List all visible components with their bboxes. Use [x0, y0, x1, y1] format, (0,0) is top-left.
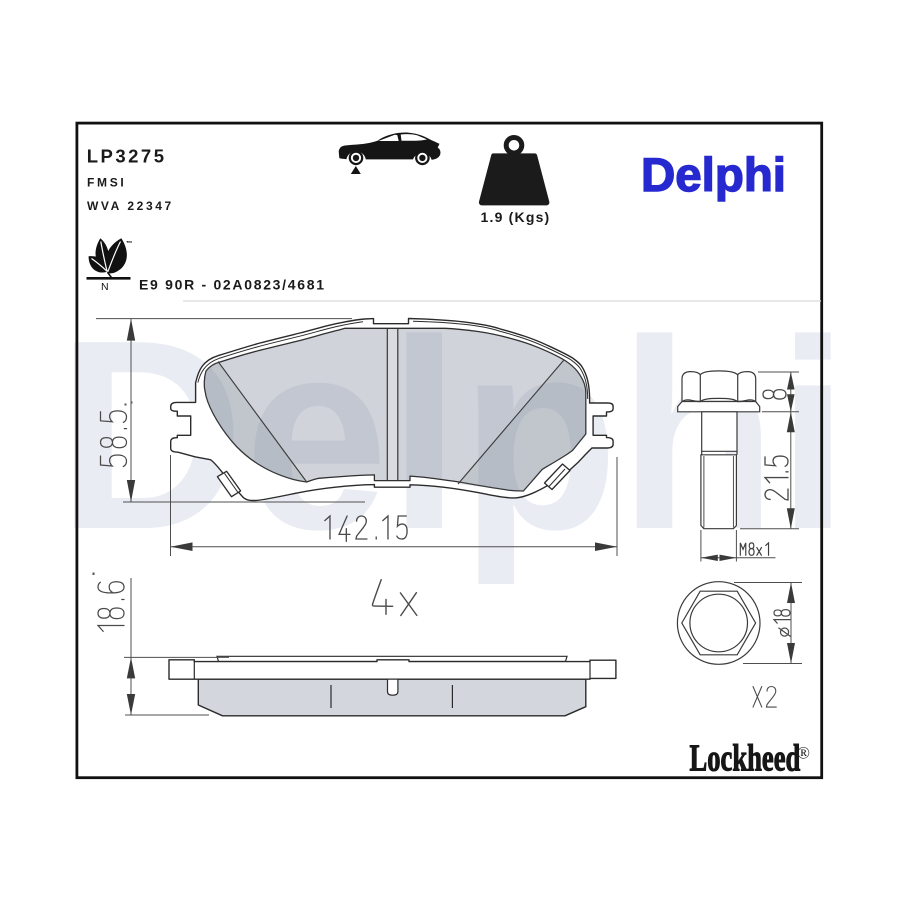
svg-text:Lockheed: Lockheed — [690, 738, 801, 780]
svg-text:®: ® — [797, 744, 810, 763]
svg-text:LP3275: LP3275 — [87, 146, 167, 167]
svg-text:™: ™ — [126, 241, 133, 248]
svg-text:1.9 (Kgs): 1.9 (Kgs) — [481, 209, 551, 225]
svg-text:Delphi: Delphi — [641, 148, 786, 201]
svg-text:N: N — [101, 281, 109, 293]
svg-text:WVA 22347: WVA 22347 — [87, 199, 174, 213]
svg-text:E9 90R - 02A0823/4681: E9 90R - 02A0823/4681 — [139, 276, 326, 292]
svg-text:FMSI: FMSI — [87, 176, 126, 190]
